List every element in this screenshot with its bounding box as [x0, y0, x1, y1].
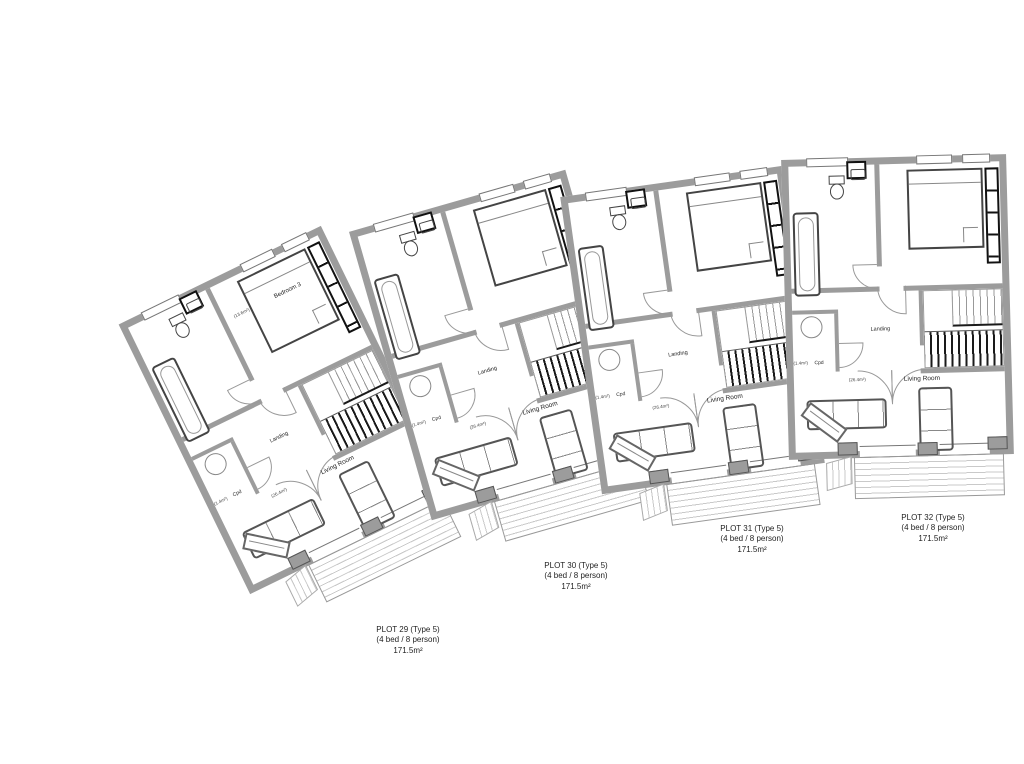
- pillar: [648, 469, 670, 485]
- landing-name: Landing: [871, 326, 891, 333]
- pillar: [838, 442, 858, 456]
- door-arc: [228, 380, 260, 412]
- plot-number: PLOT 30 (Type 5): [511, 561, 641, 571]
- plot-31-label: PLOT 31 (Type 5) (4 bed / 8 person) 171.…: [687, 524, 817, 555]
- door-arc: [247, 457, 279, 489]
- door-arc: [451, 388, 481, 418]
- plot-29-label: PLOT 29 (Type 5) (4 bed / 8 person) 171.…: [343, 625, 473, 656]
- door-arc: [643, 290, 670, 317]
- plot-area: 171.5m²: [343, 646, 473, 656]
- plot-occupancy: (4 bed / 8 person): [868, 523, 998, 533]
- plot-occupancy: (4 bed / 8 person): [343, 635, 473, 645]
- door-arc: [259, 387, 296, 424]
- plot-number: PLOT 31 (Type 5): [687, 524, 817, 534]
- cupboard-name: Cpd: [616, 391, 626, 398]
- plot-number: PLOT 32 (Type 5): [868, 513, 998, 523]
- pillar: [918, 442, 938, 456]
- door-arc: [839, 343, 864, 368]
- door-arc: [670, 308, 702, 340]
- plot-30-label: PLOT 30 (Type 5) (4 bed / 8 person) 171.…: [511, 561, 641, 592]
- pillar: [987, 436, 1007, 450]
- cupboard-area: (1.4m²): [793, 360, 808, 366]
- living-room-name: Living Room: [904, 375, 940, 384]
- door-arc: [445, 309, 475, 339]
- door-arc: [853, 265, 878, 290]
- plot-area: 171.5m²: [511, 582, 641, 592]
- cupboard-name: Cpd: [814, 360, 823, 366]
- decking: [854, 453, 1005, 499]
- plot-occupancy: (4 bed / 8 person): [511, 571, 641, 581]
- plot-area: 171.5m²: [868, 534, 998, 544]
- plot-number: PLOT 29 (Type 5): [343, 625, 473, 635]
- plot-occupancy: (4 bed / 8 person): [687, 534, 817, 544]
- plot-area: 171.5m²: [687, 545, 817, 555]
- living-room-area: (26.4m²): [849, 377, 866, 383]
- door-arc: [474, 322, 509, 357]
- door-arc: [877, 286, 906, 315]
- deck-steps: [826, 456, 853, 491]
- plot-32: Landing Cpd (1.4m²) Living Room (26.4m²): [781, 154, 1014, 460]
- plot-32-label: PLOT 32 (Type 5) (4 bed / 8 person) 171.…: [868, 513, 998, 544]
- door-arc: [638, 370, 665, 397]
- floorplan-page: Bedroom 3 (13.6m²) Landing Cpd (1.4m²) L…: [0, 0, 1024, 764]
